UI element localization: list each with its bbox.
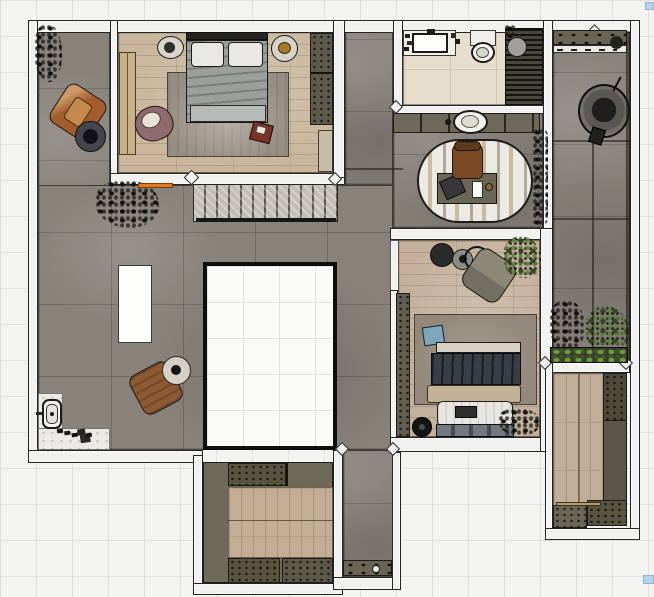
selection-handle-bottom-right[interactable] (643, 575, 654, 584)
corridor-shelf-bowl (372, 565, 380, 573)
selection-handle-top-right[interactable] (645, 2, 654, 10)
corridor-console-shelf[interactable] (343, 560, 392, 576)
floor-plan-canvas[interactable] (0, 0, 654, 597)
corridor (0, 0, 654, 597)
